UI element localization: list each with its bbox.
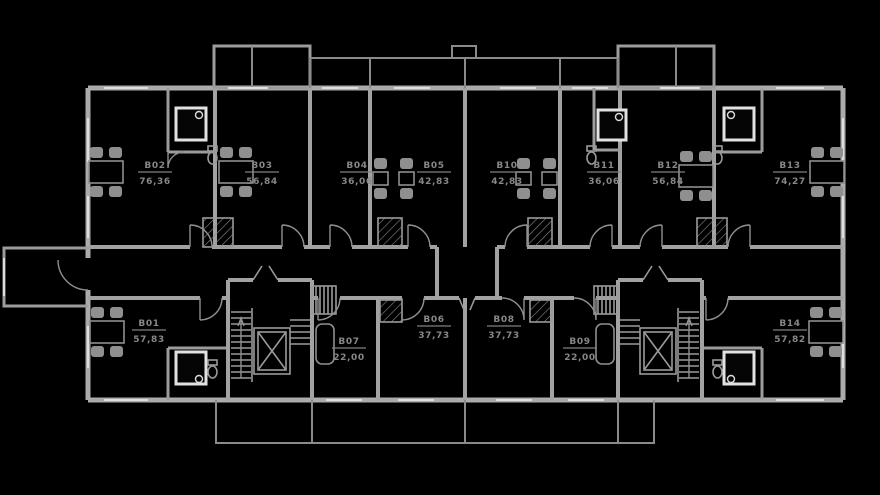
toilet-icon	[208, 360, 217, 378]
apartment-number: B02	[144, 161, 165, 171]
shower-icon	[598, 110, 626, 140]
apartment-number: B01	[138, 319, 159, 329]
elevator-left-icon	[254, 328, 290, 374]
apartment-number: B14	[779, 319, 800, 329]
central-lobby	[437, 247, 497, 298]
apartment-area: 56,84	[652, 177, 683, 187]
door-arc	[58, 260, 88, 290]
apartment-partitions	[168, 88, 762, 400]
apartment-number: B13	[779, 161, 800, 171]
shower-icon	[176, 352, 206, 384]
apartment-label-B09: B0922,00	[563, 337, 597, 363]
apartment-number: B05	[423, 161, 444, 171]
vent-shaft	[697, 218, 727, 247]
top-center-shaft	[452, 46, 476, 58]
vent-shaft	[378, 218, 402, 247]
apartment-area: 36,06	[588, 177, 619, 187]
core-right-doors	[643, 266, 668, 280]
apartment-area: 22,00	[564, 353, 595, 363]
apartment-number: B08	[493, 315, 514, 325]
apartment-number: B03	[251, 161, 272, 171]
apartment-label-B02: B0276,36	[138, 161, 172, 187]
apartment-area: 57,82	[774, 335, 805, 345]
core-left-doors	[253, 266, 278, 280]
apartment-area: 36,06	[341, 177, 372, 187]
stairwell-right	[594, 266, 702, 400]
door-arc	[728, 225, 750, 247]
toilet-icon	[713, 360, 722, 378]
door-arc	[505, 225, 527, 247]
door-arc	[408, 225, 430, 247]
top-canopy-left	[214, 46, 310, 88]
bottom-balcony	[216, 400, 654, 443]
stairwell-left	[228, 266, 336, 400]
vent-shaft	[530, 300, 552, 322]
vent-shaft	[203, 218, 233, 247]
cafe-set	[373, 158, 388, 199]
door-arc	[706, 298, 728, 320]
apartment-number: B04	[346, 161, 367, 171]
floor-plan-svg: B0276,36B0356,84B0436,06B0542,83B1042,83…	[0, 0, 880, 495]
dining-set	[810, 147, 844, 197]
vent-shaft	[528, 218, 552, 247]
apartment-area: 37,73	[418, 331, 449, 341]
door-arc	[282, 225, 304, 247]
shower-icon	[724, 108, 754, 140]
shower-icon	[176, 108, 206, 140]
top-balcony-strip	[310, 58, 618, 88]
apartment-area: 76,36	[139, 177, 170, 187]
door-arc	[640, 225, 662, 247]
apartment-label-B14: B1457,82	[773, 319, 807, 345]
apartment-area: 42,83	[491, 177, 522, 187]
entrance-steps-right	[594, 286, 618, 364]
apartment-area: 56,84	[246, 177, 277, 187]
apartment-label-B05: B0542,83	[417, 161, 451, 187]
apartment-area: 57,83	[133, 335, 164, 345]
dining-set	[809, 307, 843, 357]
apartment-label-B06: B0637,73	[417, 315, 451, 341]
apartment-area: 74,27	[774, 177, 805, 187]
apartment-area: 37,73	[488, 331, 519, 341]
cafe-set	[399, 158, 414, 199]
door-arc	[200, 298, 222, 320]
apartment-label-B08: B0837,73	[487, 315, 521, 341]
dining-set	[90, 307, 124, 357]
shower-icon	[724, 352, 754, 384]
door-arc	[590, 225, 612, 247]
vent-shaft	[380, 300, 402, 322]
apartment-number: B11	[593, 161, 614, 171]
apartment-number: B10	[496, 161, 517, 171]
floor-plan-page: B0276,36B0356,84B0436,06B0542,83B1042,83…	[0, 0, 880, 495]
apartment-number: B06	[423, 315, 444, 325]
apartment-number: B09	[569, 337, 590, 347]
elevator-right-icon	[640, 328, 676, 374]
cafe-set	[542, 158, 557, 199]
dining-set	[89, 147, 123, 197]
apartment-label-B11: B1136,06	[587, 161, 621, 187]
stairs-right-icon	[620, 308, 699, 382]
door-arc	[168, 152, 184, 168]
apartment-label-B13: B1374,27	[773, 161, 807, 187]
dining-set	[679, 151, 713, 201]
apartment-label-B01: B0157,83	[132, 319, 166, 345]
top-balconies	[214, 46, 714, 88]
door-arc	[402, 298, 424, 320]
apartment-area: 42,83	[418, 177, 449, 187]
left-annex	[4, 248, 88, 306]
door-arc	[574, 298, 596, 320]
door-arc	[330, 225, 352, 247]
stairs-left-icon	[231, 308, 310, 382]
apartment-label-B07: B0722,00	[332, 337, 366, 363]
apartment-number: B07	[338, 337, 359, 347]
top-canopy-right	[618, 46, 714, 88]
apartment-number: B12	[657, 161, 678, 171]
apartment-area: 22,00	[333, 353, 364, 363]
